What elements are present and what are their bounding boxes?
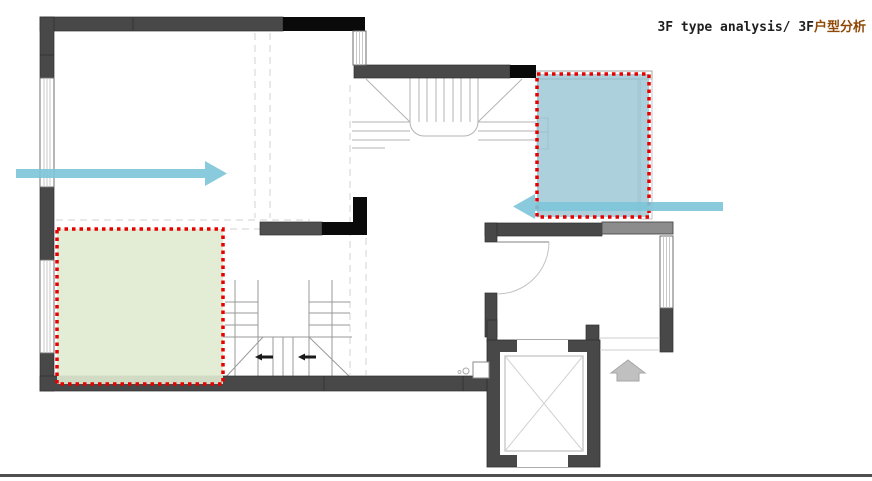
bottom-divider	[0, 474, 872, 477]
entry-door	[497, 242, 549, 294]
highlight-region-blue	[537, 74, 649, 217]
stair-direction-arrow	[255, 354, 316, 361]
floor-plan-drawing: 3F type analysis/ 3F户型分析	[0, 0, 872, 481]
window-right-room	[660, 236, 673, 308]
wall-top	[40, 17, 283, 31]
wall-top-black	[283, 17, 365, 31]
lower-staircase	[222, 280, 352, 379]
page-title: 3F type analysis/ 3F户型分析	[657, 19, 866, 35]
slide-canvas: 3F type analysis/ 3F户型分析	[0, 0, 872, 481]
window-top-middle	[353, 31, 366, 65]
window-left-lower	[40, 260, 54, 353]
highlight-region-green	[57, 229, 223, 384]
upper-staircase	[352, 78, 536, 148]
elevator	[487, 340, 600, 467]
page-title-en: 3F type analysis/ 3F	[657, 20, 814, 35]
up-block-arrow	[611, 360, 645, 381]
page-title-zh: 户型分析	[814, 19, 866, 35]
